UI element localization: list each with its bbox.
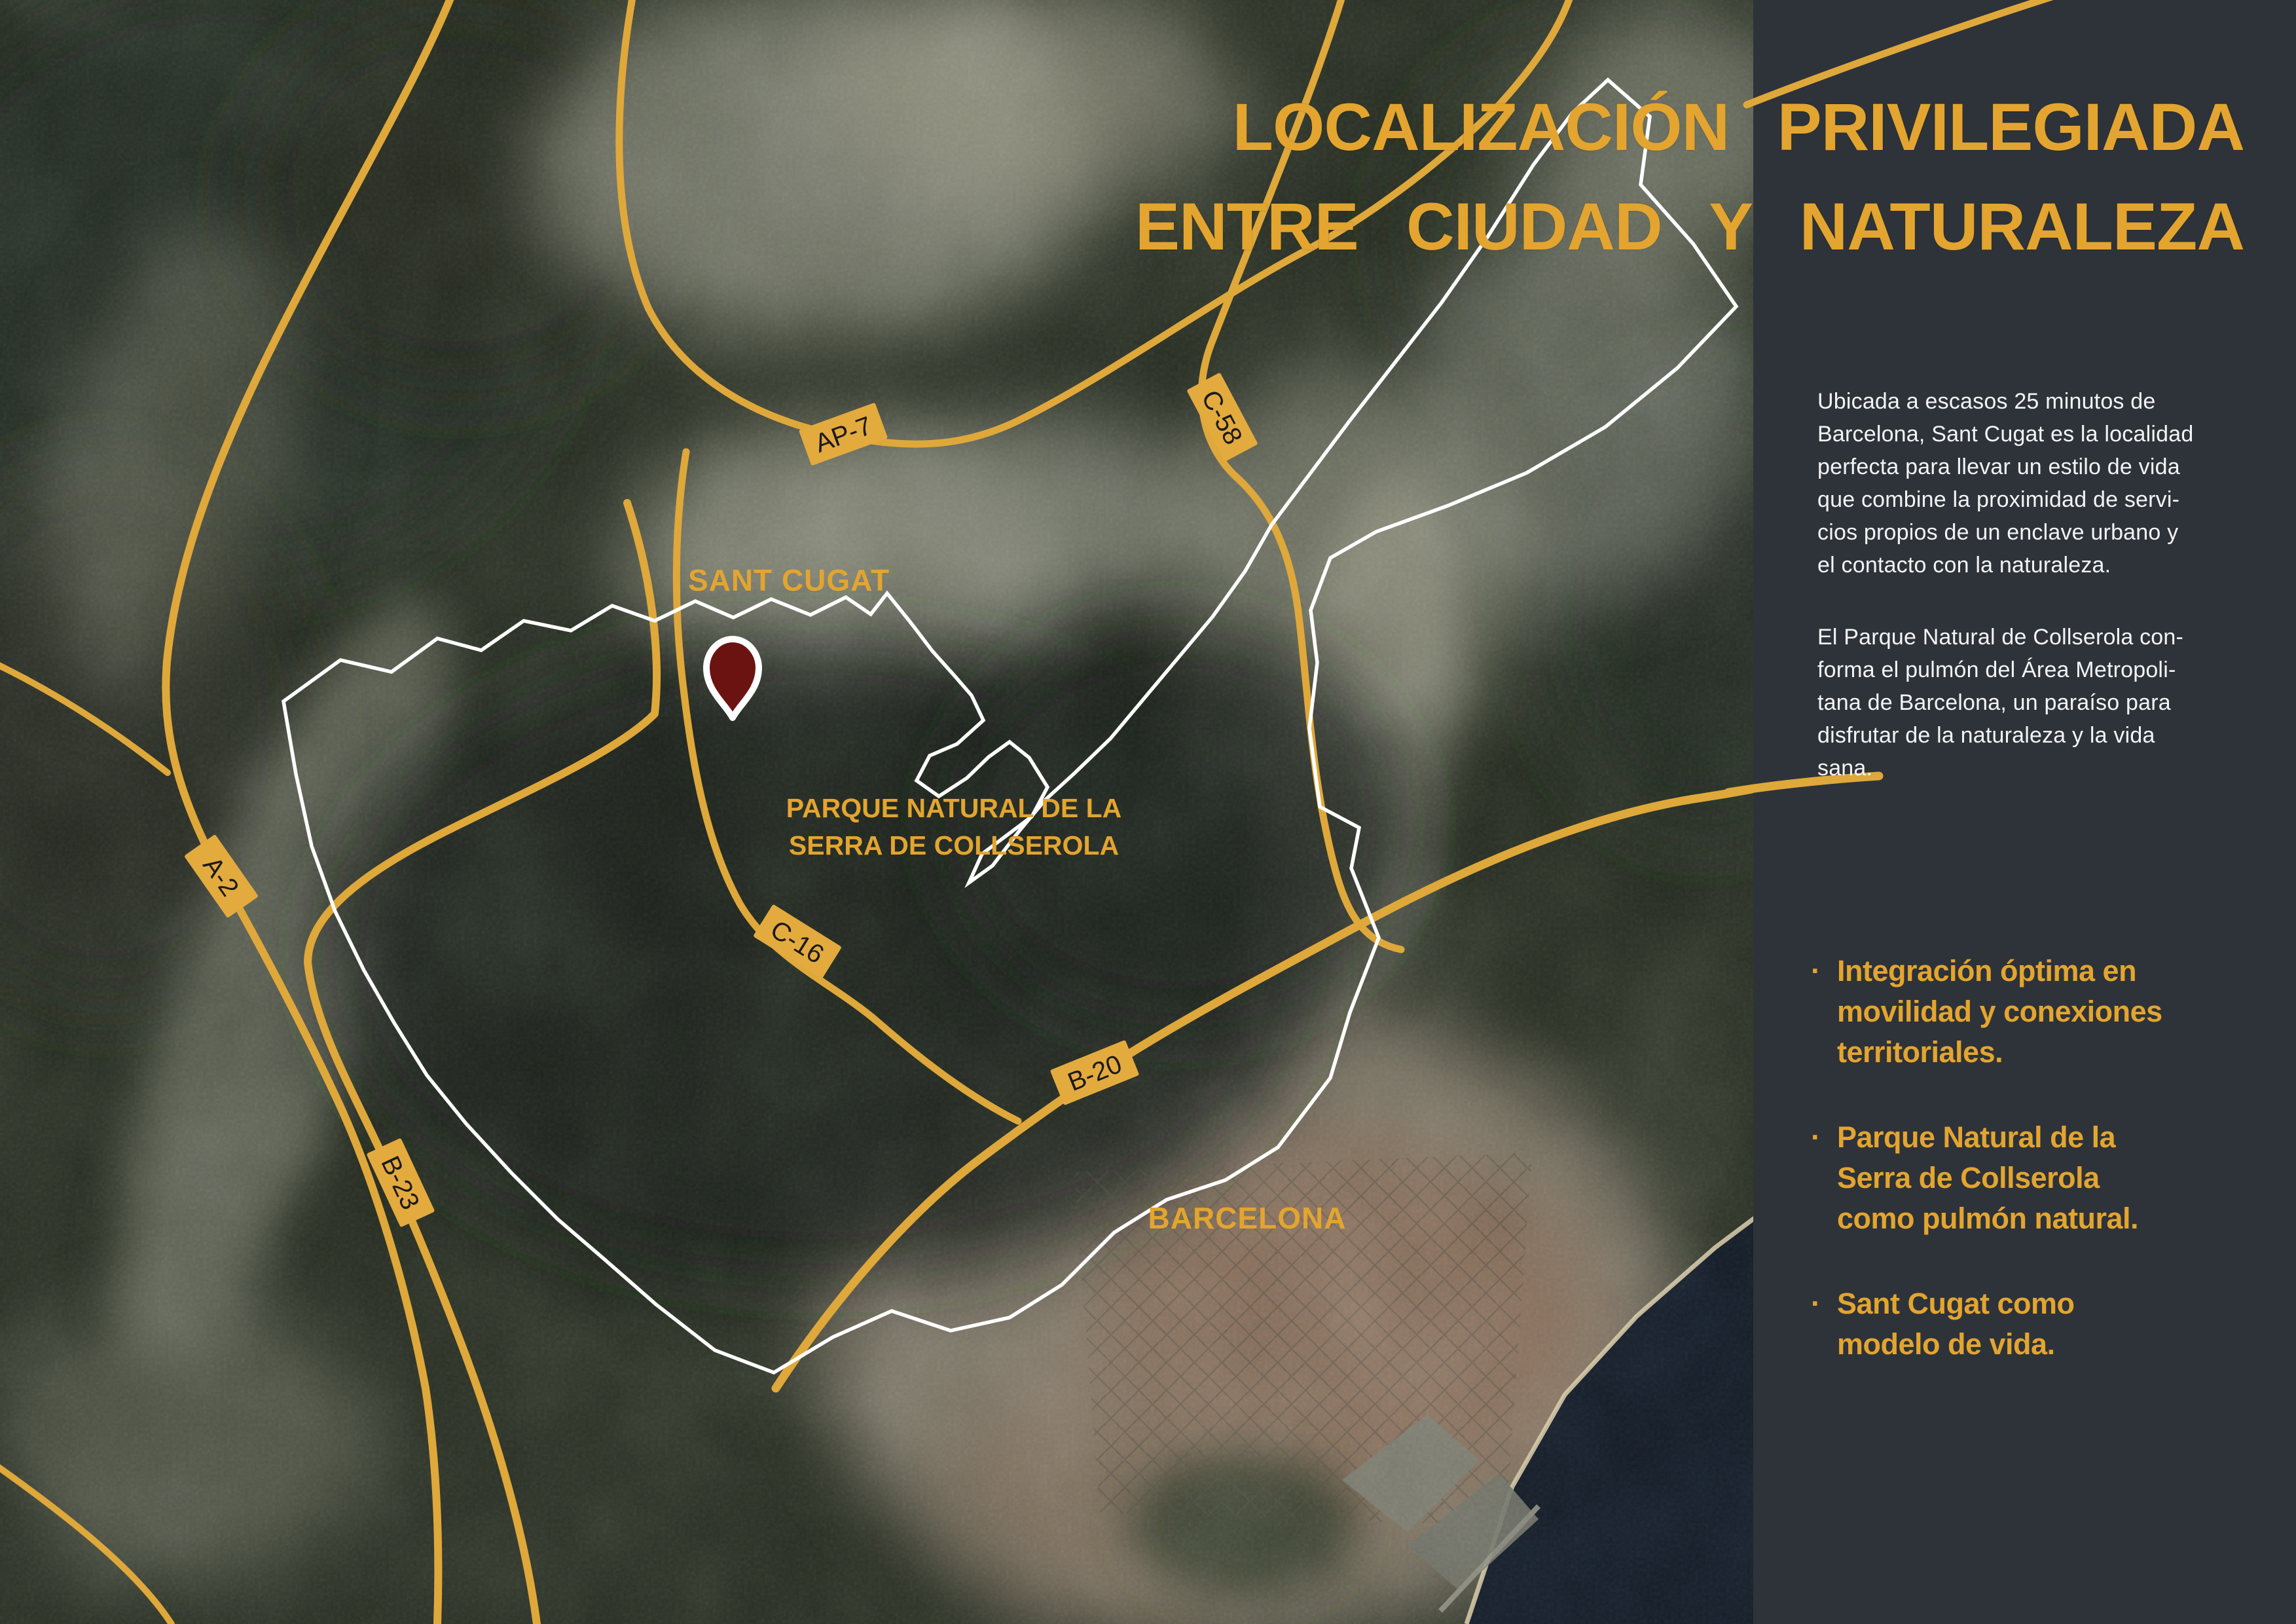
page-title: LOCALIZACIÓN PRIVILEGIADA ENTRE CIUDAD Y… (1135, 77, 2244, 276)
highlight-bullet-list: · Integración óptima en movilidad y cone… (1811, 951, 2269, 1409)
label-barcelona: BARCELONA (1148, 1201, 1347, 1235)
list-item: · Integración óptima en movilidad y cone… (1811, 951, 2269, 1073)
list-item: · Sant Cugat como modelo de vida. (1811, 1283, 2269, 1365)
bullet-text: Parque Natural de la Serra de Collserola… (1837, 1117, 2138, 1239)
bullet-text: Integración óptima en movilidad y conexi… (1837, 951, 2162, 1073)
bullet-text: Sant Cugat como modelo de vida. (1837, 1283, 2075, 1365)
label-park-line1: PARQUE NATURAL DE LA (786, 793, 1122, 823)
label-sant-cugat: SANT CUGAT (688, 563, 890, 597)
sidebar-paragraph-1: Ubicada a escasos 25 minutos de Barcelon… (1817, 385, 2263, 581)
list-item: · Parque Natural de la Serra de Collsero… (1811, 1117, 2269, 1239)
sidebar-paragraph-2: El Parque Natural de Collserola con- for… (1817, 621, 2263, 784)
bullet-marker: · (1811, 951, 1837, 991)
bullet-marker: · (1811, 1117, 1837, 1158)
label-park-line2: SERRA DE COLLSEROLA (789, 830, 1119, 860)
bullet-marker: · (1811, 1283, 1837, 1324)
slide-canvas: AP-7 C-58 A-2 C-16 B-20 B-23 (0, 0, 2296, 1624)
